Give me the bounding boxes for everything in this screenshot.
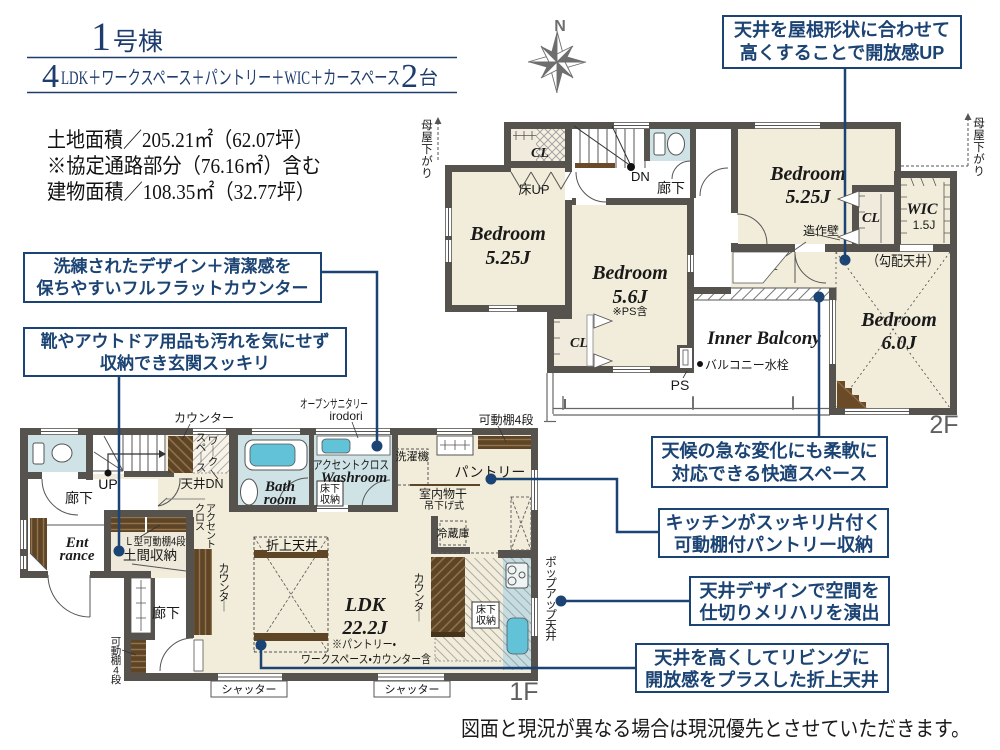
svg-text:Ｌ型可動棚4段: Ｌ型可動棚4段 — [125, 534, 186, 548]
svg-text:UP: UP — [98, 476, 117, 492]
svg-text:可動棚4段: 可動棚4段 — [479, 412, 534, 427]
svg-text:N: N — [554, 18, 566, 35]
svg-text:ワ｜ク: ワ｜ク — [208, 435, 219, 468]
svg-text:吊下げ式: 吊下げ式 — [424, 499, 464, 512]
svg-text:床UP: 床UP — [518, 182, 549, 197]
svg-text:土間収納: 土間収納 — [123, 548, 177, 563]
svg-text:シャッター: シャッター — [385, 683, 440, 696]
svg-text:廊下: 廊下 — [657, 180, 685, 196]
svg-text:廊下: 廊下 — [152, 605, 180, 621]
svg-text:2F: 2F — [929, 411, 958, 439]
svg-text:室内物干: 室内物干 — [419, 487, 467, 501]
svg-text:DN: DN — [631, 169, 650, 184]
svg-text:room: room — [264, 492, 297, 508]
svg-text:Bedroom: Bedroom — [769, 163, 846, 185]
svg-text:22.2J: 22.2J — [342, 617, 389, 639]
svg-text:床下: 床下 — [476, 604, 496, 616]
svg-text:CL: CL — [570, 336, 588, 351]
svg-text:（勾配天井）: （勾配天井） — [867, 253, 939, 269]
svg-text:5.25J: 5.25J — [486, 247, 532, 269]
svg-text:可動棚4段: 可動棚4段 — [111, 636, 122, 686]
svg-text:廊下: 廊下 — [65, 490, 93, 506]
svg-text:アクセント: アクセント — [206, 504, 216, 551]
svg-text:rance: rance — [60, 548, 95, 564]
svg-text:LDK: LDK — [344, 594, 387, 616]
svg-text:Washroom: Washroom — [321, 470, 387, 486]
svg-text:Bedroom: Bedroom — [860, 309, 937, 331]
svg-text:ワークスペース・カウンター含: ワークスペース・カウンター含 — [301, 653, 431, 666]
svg-text:PS: PS — [671, 377, 690, 393]
svg-text:天井DN: 天井DN — [180, 477, 223, 491]
svg-text:Bedroom: Bedroom — [469, 223, 546, 245]
svg-text:irodori: irodori — [329, 409, 362, 423]
svg-text:5.25J: 5.25J — [786, 186, 832, 208]
svg-text:カウンタ｜: カウンタ｜ — [414, 572, 425, 623]
svg-text:クロス: クロス — [195, 503, 205, 533]
svg-text:6.0J: 6.0J — [882, 332, 918, 354]
svg-text:5.6J: 5.6J — [613, 286, 649, 308]
svg-text:Inner Balcony: Inner Balcony — [706, 328, 821, 349]
svg-text:CL: CL — [862, 211, 880, 226]
svg-text:CL: CL — [531, 146, 549, 161]
svg-text:バルコニー水栓: バルコニー水栓 — [705, 358, 789, 372]
svg-text:Bedroom: Bedroom — [591, 262, 668, 284]
svg-text:収納: 収納 — [320, 493, 340, 506]
svg-text:洗濯機: 洗濯機 — [396, 450, 429, 463]
svg-text:ポップアップ天井: ポップアップ天井 — [545, 556, 557, 643]
svg-text:カウンタ｜: カウンタ｜ — [219, 562, 230, 613]
svg-text:カウンター: カウンター — [174, 411, 234, 425]
svg-text:WIC: WIC — [906, 201, 937, 218]
svg-text:※パントリー・: ※パントリー・ — [332, 638, 396, 651]
svg-text:1.5J: 1.5J — [913, 218, 936, 232]
svg-text:母屋下がり: 母屋下がり — [421, 119, 433, 180]
svg-text:1F: 1F — [509, 678, 538, 706]
svg-text:冷蔵庫: 冷蔵庫 — [437, 526, 470, 540]
svg-text:収納: 収納 — [476, 614, 496, 627]
svg-text:スペ｜ス: スペ｜ス — [196, 432, 207, 474]
svg-text:※PS含: ※PS含 — [613, 305, 648, 318]
svg-text:シャッター: シャッター — [222, 683, 277, 696]
svg-text:母屋下がり: 母屋下がり — [973, 117, 985, 178]
svg-text:折上天井: 折上天井 — [266, 538, 318, 553]
